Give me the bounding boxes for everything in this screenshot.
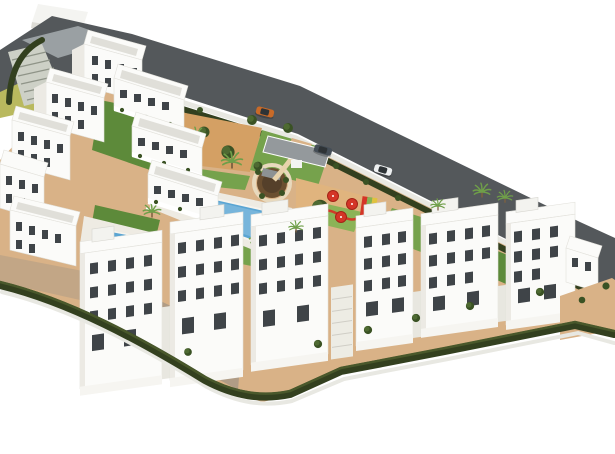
gate bbox=[291, 160, 302, 168]
aerial-render bbox=[0, 0, 615, 454]
apartment-block bbox=[170, 202, 243, 387]
stairwell bbox=[498, 285, 506, 322]
render-canvas bbox=[0, 0, 615, 454]
apartment-block bbox=[80, 219, 162, 396]
stairwell bbox=[331, 284, 353, 359]
apartment-block bbox=[421, 192, 498, 338]
stairwell bbox=[162, 306, 170, 379]
